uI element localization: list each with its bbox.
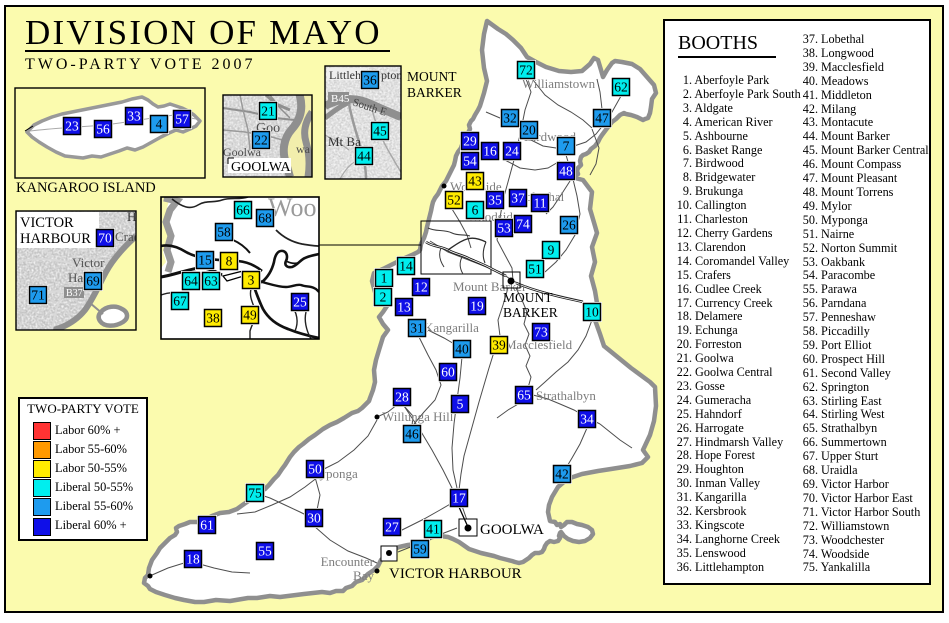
svg-text:64: 64 bbox=[184, 274, 198, 289]
svg-text:70: 70 bbox=[98, 231, 112, 246]
svg-text:58: 58 bbox=[217, 225, 231, 240]
svg-text:13: 13 bbox=[397, 300, 411, 315]
svg-text:56: 56 bbox=[96, 122, 110, 137]
svg-text:22: 22 bbox=[254, 133, 268, 148]
svg-text:59: 59 bbox=[413, 542, 427, 557]
svg-text:HARBOUR: HARBOUR bbox=[20, 231, 91, 247]
svg-text:35: 35 bbox=[488, 193, 502, 208]
svg-text:67: 67 bbox=[173, 294, 187, 309]
svg-text:11: 11 bbox=[534, 196, 547, 211]
svg-text:51: 51 bbox=[528, 262, 542, 277]
svg-text:7: 7 bbox=[563, 139, 570, 154]
svg-text:75: 75 bbox=[248, 486, 262, 501]
svg-text:Crad: Crad bbox=[115, 229, 141, 244]
svg-text:VICTOR HARBOUR: VICTOR HARBOUR bbox=[389, 566, 522, 582]
svg-text:53: 53 bbox=[497, 221, 511, 236]
svg-text:45: 45 bbox=[373, 124, 387, 139]
svg-text:wa: wa bbox=[296, 142, 311, 156]
svg-text:27: 27 bbox=[385, 520, 399, 535]
svg-text:43: 43 bbox=[468, 174, 482, 189]
svg-text:54: 54 bbox=[463, 154, 477, 169]
svg-text:57: 57 bbox=[175, 112, 189, 127]
svg-text:31: 31 bbox=[410, 321, 424, 336]
svg-text:9: 9 bbox=[548, 243, 555, 258]
svg-text:23: 23 bbox=[65, 119, 79, 134]
svg-text:29: 29 bbox=[463, 134, 477, 149]
svg-text:15: 15 bbox=[198, 253, 212, 268]
svg-text:21: 21 bbox=[261, 104, 275, 119]
svg-text:2: 2 bbox=[380, 290, 387, 305]
svg-text:40: 40 bbox=[455, 342, 469, 357]
svg-text:44: 44 bbox=[357, 149, 371, 164]
svg-text:Littleh: Littleh bbox=[329, 68, 361, 82]
svg-text:B45: B45 bbox=[331, 93, 350, 105]
svg-text:42: 42 bbox=[555, 467, 569, 482]
svg-text:36: 36 bbox=[363, 73, 377, 88]
svg-text:39: 39 bbox=[492, 338, 506, 353]
svg-text:1: 1 bbox=[381, 271, 388, 286]
svg-text:BARKER: BARKER bbox=[407, 85, 462, 100]
svg-text:GOOLWA: GOOLWA bbox=[480, 522, 544, 538]
svg-text:MOUNT: MOUNT bbox=[407, 69, 457, 84]
svg-text:71: 71 bbox=[31, 288, 45, 303]
svg-text:pton: pton bbox=[381, 68, 402, 82]
svg-text:19: 19 bbox=[470, 299, 484, 314]
svg-text:41: 41 bbox=[426, 522, 440, 537]
svg-text:18: 18 bbox=[186, 552, 200, 567]
svg-text:20: 20 bbox=[522, 123, 536, 138]
svg-text:5: 5 bbox=[457, 397, 464, 412]
svg-text:33: 33 bbox=[127, 109, 141, 124]
svg-text:34: 34 bbox=[580, 412, 594, 427]
svg-text:65: 65 bbox=[517, 388, 531, 403]
svg-text:4: 4 bbox=[156, 117, 163, 132]
svg-text:48: 48 bbox=[559, 164, 573, 179]
svg-text:Bay: Bay bbox=[353, 568, 374, 583]
svg-text:38: 38 bbox=[206, 311, 220, 326]
svg-text:16: 16 bbox=[483, 144, 497, 159]
svg-text:Willunga Hill: Willunga Hill bbox=[382, 409, 454, 424]
svg-text:62: 62 bbox=[614, 80, 628, 95]
svg-text:Kangarilla: Kangarilla bbox=[424, 320, 479, 335]
svg-text:28: 28 bbox=[395, 390, 409, 405]
svg-text:55: 55 bbox=[258, 544, 272, 559]
svg-text:Victor: Victor bbox=[72, 255, 105, 270]
svg-text:12: 12 bbox=[414, 280, 428, 295]
svg-text:8: 8 bbox=[226, 254, 233, 269]
svg-text:6: 6 bbox=[472, 203, 479, 218]
svg-text:Encounter: Encounter bbox=[321, 554, 375, 569]
svg-text:25: 25 bbox=[293, 295, 307, 310]
svg-text:GOOLWA: GOOLWA bbox=[231, 160, 292, 175]
svg-text:46: 46 bbox=[405, 427, 419, 442]
svg-text:60: 60 bbox=[441, 365, 455, 380]
svg-text:66: 66 bbox=[236, 203, 250, 218]
svg-text:17: 17 bbox=[452, 491, 466, 506]
svg-text:VICTOR: VICTOR bbox=[20, 215, 74, 231]
svg-text:68: 68 bbox=[258, 211, 272, 226]
svg-text:Strathalbyn: Strathalbyn bbox=[536, 388, 596, 403]
svg-text:37: 37 bbox=[511, 191, 525, 206]
svg-text:30: 30 bbox=[307, 511, 321, 526]
svg-text:47: 47 bbox=[595, 111, 609, 126]
svg-text:50: 50 bbox=[308, 462, 322, 477]
svg-text:49: 49 bbox=[243, 308, 257, 323]
svg-text:74: 74 bbox=[516, 217, 530, 232]
svg-text:B37: B37 bbox=[66, 288, 83, 299]
svg-text:14: 14 bbox=[399, 259, 413, 274]
svg-text:63: 63 bbox=[204, 274, 218, 289]
svg-text:61: 61 bbox=[200, 518, 214, 533]
svg-text:KANGAROO ISLAND: KANGAROO ISLAND bbox=[16, 180, 156, 196]
svg-text:32: 32 bbox=[503, 111, 517, 126]
svg-text:52: 52 bbox=[447, 193, 461, 208]
svg-text:BARKER: BARKER bbox=[503, 305, 558, 320]
svg-text:73: 73 bbox=[534, 325, 548, 340]
svg-text:10: 10 bbox=[585, 305, 599, 320]
svg-text:3: 3 bbox=[248, 273, 255, 288]
svg-text:72: 72 bbox=[519, 63, 533, 78]
svg-text:69: 69 bbox=[86, 274, 100, 289]
svg-text:MOUNT: MOUNT bbox=[503, 290, 553, 305]
svg-text:24: 24 bbox=[505, 144, 519, 159]
svg-text:26: 26 bbox=[562, 218, 576, 233]
